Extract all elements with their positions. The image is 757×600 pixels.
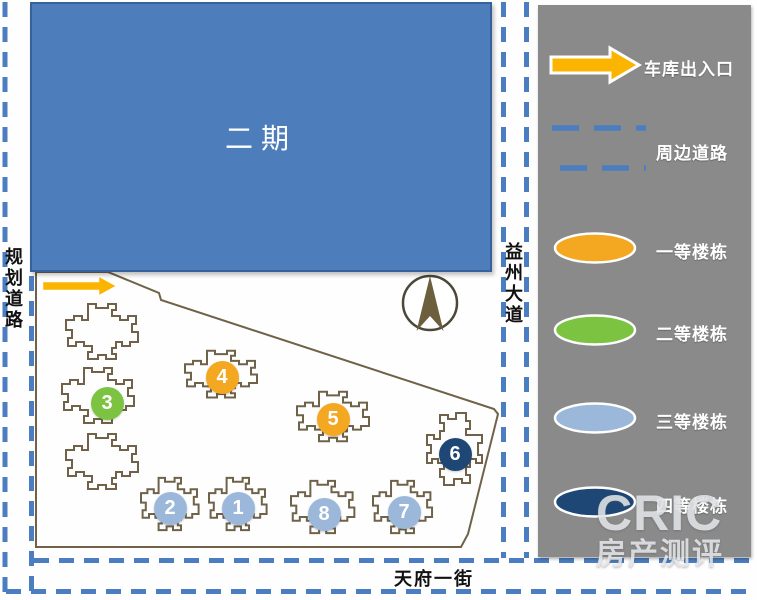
building-marker-1: 1 — [222, 492, 255, 525]
building-marker-2: 2 — [154, 492, 187, 525]
legend-label-tier2: 二等楼栋 — [656, 320, 728, 345]
phase2-parcel: 二期 — [30, 2, 492, 272]
tier4-legend-icon — [551, 485, 639, 519]
building-marker-7: 7 — [388, 496, 421, 529]
building-marker-4: 4 — [206, 361, 239, 394]
legend-label-garage: 车库出入口 — [644, 55, 734, 80]
building-marker-8: 8 — [308, 498, 341, 531]
tier1-legend-icon — [551, 231, 639, 265]
building-footprints — [62, 304, 482, 533]
building-3c-footprint — [66, 434, 138, 489]
street-label-left: 规划道路 — [4, 247, 22, 331]
garage-entrance-legend-icon — [548, 45, 644, 85]
phase2-label: 二期 — [225, 117, 297, 157]
garage-entrance-arrow — [42, 275, 118, 297]
legend-label-tier4: 四等楼栋 — [656, 492, 728, 517]
north-compass-icon — [403, 276, 457, 331]
building-3a-footprint — [66, 304, 138, 359]
legend-label-roads: 周边道路 — [656, 139, 728, 164]
street-label-right: 益州大道 — [504, 242, 522, 326]
building-marker-5: 5 — [317, 403, 350, 436]
building-marker-6: 6 — [439, 438, 472, 471]
site-plan: 二期 规划道路 益州大道 天府一街 12345678 车库出入口 周边道路 一等… — [0, 0, 757, 600]
legend-label-tier3: 三等楼栋 — [656, 408, 728, 433]
tier2-legend-icon — [551, 313, 639, 347]
building-marker-3: 3 — [91, 387, 124, 420]
legend-panel: 车库出入口 周边道路 一等楼栋 二等楼栋 三等楼栋 四等楼栋 — [538, 5, 751, 557]
tier3-legend-icon — [551, 401, 639, 435]
street-label-bottom: 天府一街 — [394, 565, 474, 591]
legend-label-tier1: 一等楼栋 — [656, 238, 728, 263]
surrounding-road-legend-icon — [546, 116, 648, 180]
